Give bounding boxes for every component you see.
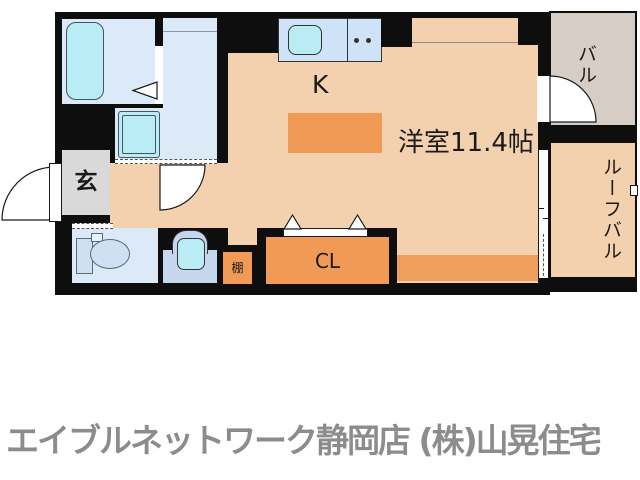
wall-pier-top-right	[518, 12, 545, 45]
stove-burner-icon	[366, 38, 371, 43]
counter-divider	[347, 18, 348, 62]
wash-basin-icon	[177, 238, 205, 270]
hallway	[110, 163, 230, 228]
vanity-counter-line	[163, 31, 217, 32]
beam-line	[412, 42, 518, 43]
closet-folding-door	[283, 228, 368, 237]
room-washroom	[163, 18, 217, 163]
balcony-door-opening	[537, 76, 550, 122]
roof-balcony-label: ルーフバル	[572, 157, 620, 227]
window-tick	[543, 218, 548, 219]
living-label: 洋室11.4帖	[398, 130, 534, 156]
wall-roof-balcony-bottom	[538, 277, 637, 292]
wall-pier-kitchen-right	[381, 12, 412, 47]
room-closet: CL	[266, 237, 389, 284]
agency-footer-text: エイブルネットワーク静岡店 (株)山晃住宅	[6, 424, 600, 457]
bathroom-door-gap	[155, 46, 163, 104]
kitchen-island	[288, 113, 382, 153]
window-dashed-line	[543, 234, 544, 276]
closet-label: CL	[315, 251, 340, 271]
roof-balcony-window-notch	[630, 185, 638, 196]
toilet-bowl-icon	[90, 239, 130, 269]
shelf-label: 棚	[231, 262, 243, 274]
stove-burner-icon	[354, 38, 359, 43]
washroom-threshold-dashed	[115, 159, 217, 164]
wall-between-balconies	[538, 125, 637, 143]
sliding-window	[538, 150, 549, 278]
balcony-label: バル	[576, 44, 595, 98]
kitchen-label: K	[312, 72, 328, 97]
washer-pan-inner	[122, 115, 156, 154]
toilet-door-dashed	[72, 223, 113, 229]
floor-band	[397, 255, 538, 281]
floorplan-canvas: 玄 CL 棚 K 洋室11.4帖 バル ルーフバル エイブルネットワーク静岡店 …	[0, 0, 640, 480]
washing-machine-pan-icon	[118, 111, 160, 158]
entrance-door-arc	[2, 167, 55, 220]
room-entrance: 玄	[62, 150, 110, 215]
bathtub-icon	[66, 22, 104, 100]
shelf-box: 棚	[223, 252, 252, 284]
entrance-label: 玄	[75, 171, 98, 194]
wall-pier-kitchen-left	[228, 12, 278, 53]
window-tick	[539, 208, 544, 209]
entrance-door-leaf	[49, 163, 62, 222]
kitchen-sink	[288, 25, 322, 55]
